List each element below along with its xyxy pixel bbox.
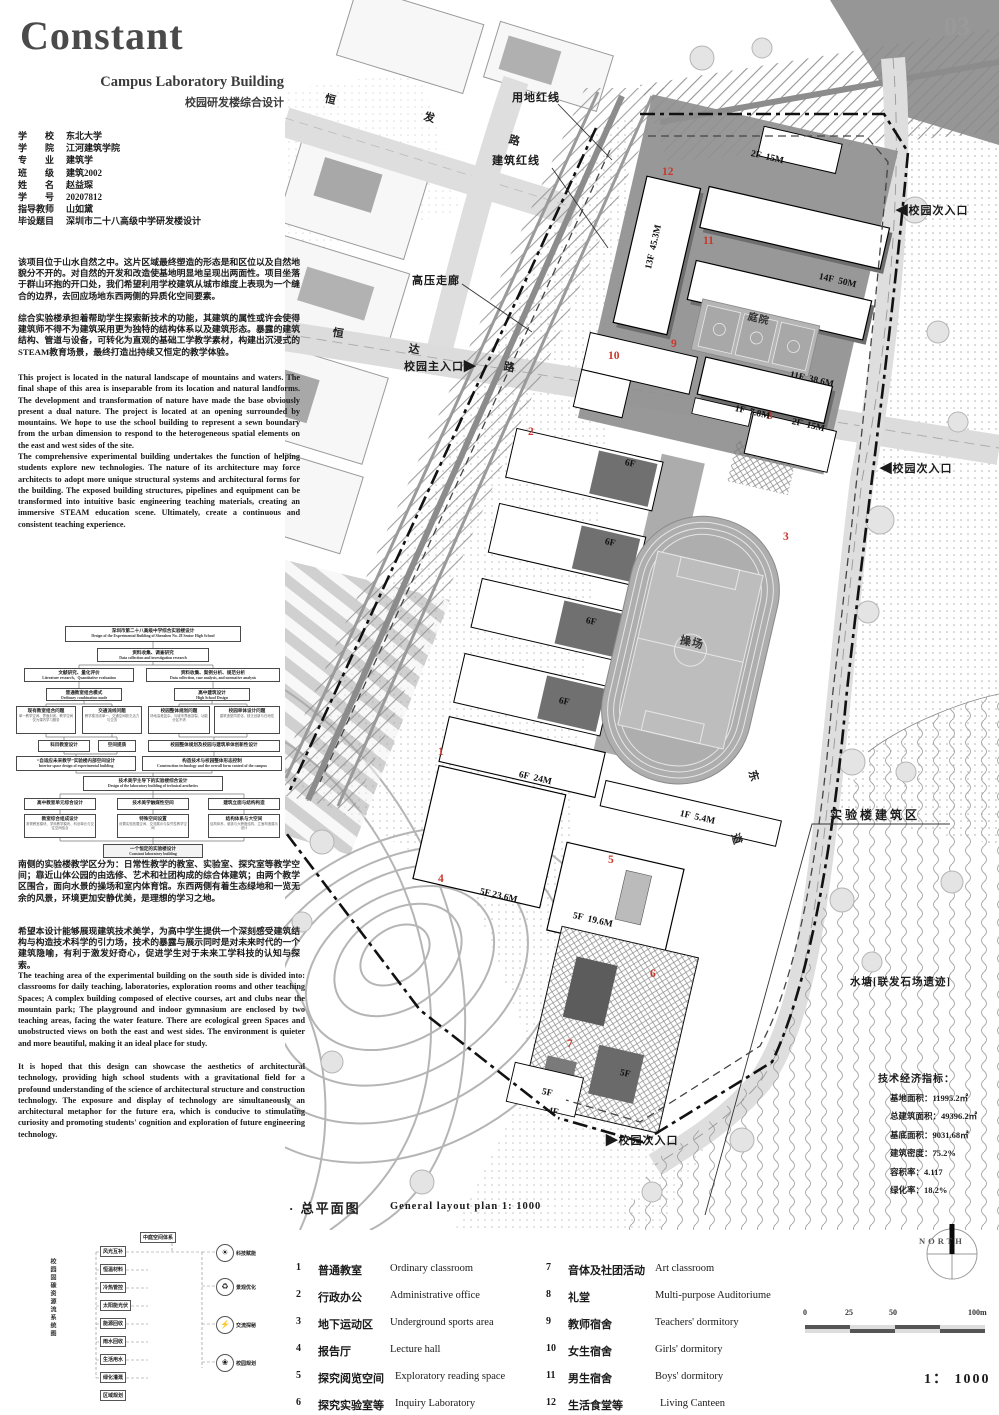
flower-icon: ❀ [216, 1354, 234, 1372]
main-entrance-label: 校园主入口▶ [404, 358, 477, 374]
info-row: 姓 名赵益琛 [18, 179, 288, 191]
section-title-zh: · 总平面图 [289, 1198, 361, 1217]
drawing-scale: 1： 1000 [924, 1368, 991, 1388]
floor-label: 6F [558, 696, 571, 708]
system-circle-label: 景观优化 [236, 1284, 256, 1291]
legend-en: Girls' dormitory [655, 1344, 723, 1355]
campus-resource-system-diagram: 校园固碳资源流系统图 中庭空间体系 风光互补 恒温材料 冷热管控 太阳能光伏 能… [52, 1228, 292, 1406]
system-node: 中庭空间体系 [140, 1232, 176, 1243]
lab-zone-label: 实验楼建筑区 [830, 806, 920, 823]
arrow-left-icon: ◀ [880, 460, 893, 476]
system-node: 冷热管控 [100, 1282, 126, 1293]
indicator-row: 建筑密度：75.2% [890, 1147, 998, 1159]
building-redline-label: 建筑红线 [492, 152, 540, 168]
legend-zh: 生活食堂等 [568, 1397, 623, 1413]
legend-item: 7音体及社团活动 [546, 1262, 645, 1278]
design-flowchart: 深圳市第二十八高级中学综合实验楼设计Design of the Experime… [16, 626, 290, 856]
legend-zh: 报告厅 [318, 1343, 351, 1359]
scale-tick: 25 [845, 1308, 853, 1317]
pond-label: 水塘[联发石场遗迹] [850, 974, 951, 989]
legend-item: 9教师宿舍 [546, 1316, 612, 1332]
legend-en: Teachers' dormitory [655, 1317, 739, 1328]
legend-en: Administrative office [390, 1290, 480, 1301]
legend-item: 12生活食堂等 [546, 1397, 623, 1413]
flowchart-box: 高中建筑设计High School Design [174, 688, 250, 701]
flowchart-box: 教室综合组成设计常规教室模块、学科教学模块、科创单元与交往空间结合 [24, 814, 96, 838]
intro-paragraph-en-2: The comprehensive experimental building … [18, 451, 300, 530]
legend-item: 11男生宿舍 [546, 1370, 612, 1386]
legend-item: 2行政办公 [296, 1289, 362, 1305]
sub-entrance-mid-label: ◀校园次入口 [880, 460, 953, 476]
indicator-row: 绿化率：18.2% [890, 1184, 998, 1196]
legend-en: Living Canteen [660, 1398, 725, 1409]
info-row: 班 级建筑2002 [18, 167, 288, 179]
scale-tick: 100m [968, 1308, 987, 1317]
legend-num: 2 [296, 1289, 318, 1305]
floor-label: 6F [585, 616, 598, 628]
sub-entrance-text: 校园次入口 [909, 205, 969, 217]
legend-en: Boys' dormitory [655, 1371, 723, 1382]
flowchart-box: 空间提质 [98, 740, 136, 752]
arrow-left-icon: ◀ [896, 202, 909, 218]
info-value: 深圳市二十八高级中学研发楼设计 [66, 215, 201, 227]
legend-item: 10女生宿舍 [546, 1343, 612, 1359]
plan-marker-11: 11 [703, 235, 714, 247]
project-info-table: 学 校东北大学 学 院江河建筑学院 专 业建筑学 班 级建筑2002 姓 名赵益… [18, 130, 288, 228]
info-label: 专 业 [18, 154, 66, 166]
flowchart-box: 交通流线问题教学楼流线单一、交通空间缺乏活力与交流 [82, 706, 142, 734]
energy-icon: ⚡ [216, 1316, 234, 1334]
legend-num: 11 [546, 1370, 568, 1386]
legend-en: Multi-purpose Auditoriume [655, 1290, 771, 1301]
flowchart-box: 结构体系与大空间结构体系、悬挑与大跨度结构、立面构造展示设计 [208, 814, 280, 838]
flowchart-box: 现有教室组合问题单一教学空间、界面封闭、教学空间仅为课内学习服务 [16, 706, 76, 734]
legend-num: 9 [546, 1316, 568, 1332]
sub-entrance-text: 校园次入口 [893, 463, 953, 475]
legend-num: 10 [546, 1343, 568, 1359]
legend-en: Exploratory reading space [395, 1371, 505, 1382]
south-paragraph-zh-1: 南侧的实验楼教学区分为：日常性教学的教室、实验室、探究室等教学空间；靠近山体公园… [18, 859, 300, 904]
main-entrance-text: 校园主入口 [404, 361, 464, 373]
legend-zh: 教师宿舍 [568, 1316, 612, 1332]
info-value: 建筑2002 [66, 167, 102, 179]
legend-en: Lecture hall [390, 1344, 440, 1355]
intro-paragraph-zh-2: 综合实验楼承担着帮助学生探索新技术的功能，其建筑的属性或许会使得建筑师不得不为建… [18, 313, 300, 358]
flowchart-box: 校园单体设计问题建筑造型同质化、缺乏创新与在地性 [214, 706, 280, 734]
plan-marker-9: 9 [671, 338, 677, 350]
south-paragraph-en-2: It is hoped that this design can showcas… [18, 1061, 305, 1140]
flowchart-box: 一个恒定的实验楼设计Constant laboratory building [103, 844, 203, 858]
sub-entrance-bottom-label: ▶校园次入口 [606, 1132, 679, 1148]
floor-label: 5F [619, 1068, 632, 1080]
flowchart-box: 普通教室组合模式Ordinary combination mode [46, 688, 122, 701]
legend-item: 6探究实验室等 [296, 1397, 384, 1413]
legend-zh: 女生宿舍 [568, 1343, 612, 1359]
system-node: 太阳能光伏 [100, 1300, 131, 1311]
indicator-row: 基地面积：11995.2㎡ [890, 1092, 998, 1104]
info-label: 毕设题目 [18, 215, 66, 227]
flowchart-box: 资料收集、案例分析、规范分析Data collection, case anal… [146, 668, 280, 682]
scale-tick: 0 [803, 1308, 807, 1317]
flowchart-box: 科目教室设计 [38, 740, 90, 752]
legend-zh: 探究实验室等 [318, 1397, 384, 1413]
legend-en: Inquiry Laboratory [395, 1398, 475, 1409]
legend-item: 3地下运动区 [296, 1316, 373, 1332]
flowchart-box: 深圳市第二十八高级中学综合实验楼设计Design of the Experime… [65, 626, 241, 642]
system-node: 雨水回收 [100, 1336, 126, 1347]
floor-label: 6F [604, 537, 617, 549]
legend-zh: 普通教室 [318, 1262, 362, 1278]
floor-label: 5F [541, 1087, 554, 1099]
legend-num: 8 [546, 1289, 568, 1305]
info-value: 建筑学 [66, 154, 93, 166]
flowchart-box: “自适应未来教学”实验楼内部空间设计Interior space design … [16, 756, 136, 771]
indicator-row: 总建筑面积：49396.2㎡ [890, 1110, 998, 1122]
info-label: 指导教师 [18, 203, 66, 215]
flowchart-box: 高中教室单元综合设计 [24, 798, 96, 810]
arrow-right-icon: ▶ [606, 1132, 619, 1148]
flowchart-box: 特殊空间设置设置实验拓展空间、交流展示与探究性教学空间 [117, 814, 189, 838]
info-label: 班 级 [18, 167, 66, 179]
legend-item: 4报告厅 [296, 1343, 351, 1359]
legend-num: 4 [296, 1343, 318, 1359]
intro-paragraph-zh-1: 该项目位于山水自然之中。这片区域最终塑造的形态是和区位以及自然地貌分不开的。对自… [18, 257, 300, 302]
legend-zh: 男生宿舍 [568, 1370, 612, 1386]
legend-zh: 礼堂 [568, 1289, 590, 1305]
flowchart-box: 校园整体规划及校园与建筑单体创新性设计 [148, 740, 280, 752]
recycle-icon: ♻ [216, 1278, 234, 1296]
floor-label: 6F [624, 458, 637, 470]
page-number: 03 [944, 12, 970, 42]
system-node: 区域规划 [100, 1390, 126, 1401]
presentation-board: 用地红线 建筑红线 高压走廊 实验楼建筑区 水塘[联发石场遗迹] 操场 庭院 校… [0, 0, 999, 1415]
floor-label: 4F [547, 1106, 560, 1118]
site-redline-label: 用地红线 [512, 89, 560, 105]
legend-en: Underground sports area [390, 1317, 494, 1328]
legend-num: 7 [546, 1262, 568, 1278]
system-circle-label: 科技赋能 [236, 1250, 256, 1257]
legend-item: 5探究阅览空间 [296, 1370, 384, 1386]
plan-marker-7: 7 [567, 1038, 573, 1050]
info-label: 学 院 [18, 142, 66, 154]
info-label: 学 号 [18, 191, 66, 203]
sub-entrance-top-label: ◀校园次入口 [896, 202, 969, 218]
subtitle-en: Campus Laboratory Building [0, 74, 284, 91]
info-row: 学 号20207812 [18, 191, 288, 203]
south-paragraph-en-1: The teaching area of the experimental bu… [18, 970, 305, 1049]
plan-marker-6: 6 [650, 968, 656, 980]
legend-num: 1 [296, 1262, 318, 1278]
system-node: 能源回收 [100, 1318, 126, 1329]
system-node: 风光互补 [100, 1246, 126, 1257]
system-circle-label: 交流探秘 [236, 1322, 256, 1329]
system-circle-label: 校园规划 [236, 1360, 256, 1367]
arrow-right-icon: ▶ [464, 358, 477, 374]
legend-num: 6 [296, 1397, 318, 1413]
plan-marker-5: 5 [608, 854, 614, 866]
hv-corridor-label: 高压走廊 [412, 272, 460, 288]
info-row: 毕设题目深圳市二十八高级中学研发楼设计 [18, 215, 288, 227]
system-node: 绿化灌溉 [100, 1372, 126, 1383]
flowchart-box: 构造技术与校园整体形态控制Construction technology and… [142, 756, 282, 771]
info-row: 指导教师山如黛 [18, 203, 288, 215]
system-node: 恒温材料 [100, 1264, 126, 1275]
technical-indicators: 技术经济指标： 基地面积：11995.2㎡ 总建筑面积：49396.2㎡ 基底面… [878, 1070, 998, 1196]
legend-item: 8礼堂 [546, 1289, 590, 1305]
subtitle-zh: 校园研发楼综合设计 [0, 94, 284, 110]
board-title: Constant [20, 12, 184, 59]
sun-icon: ☀ [216, 1244, 234, 1262]
info-value: 江河建筑学院 [66, 142, 120, 154]
intro-paragraph-en-1: This project is located in the natural l… [18, 372, 300, 451]
indicators-title: 技术经济指标： [878, 1070, 998, 1085]
plan-marker-1: 1 [438, 746, 444, 758]
plan-marker-12: 12 [662, 166, 674, 178]
flowchart-box: 技术美学主导下的实验楼综合设计Design of the laboratory … [83, 776, 223, 791]
south-paragraph-zh-2: 希望本设计能够展现建筑技术美学，为高中学生提供一个深刻感受建筑结构与构造技术科学… [18, 926, 300, 971]
info-row: 学 校东北大学 [18, 130, 288, 142]
flowchart-box: 文献研究、量化评价Literature research、Quantitativ… [24, 668, 134, 682]
info-value: 赵益琛 [66, 179, 93, 191]
legend-en: Art classroom [655, 1263, 714, 1274]
scale-tick: 50 [889, 1308, 897, 1317]
sub-entrance-text: 校园次入口 [619, 1135, 679, 1147]
info-value: 东北大学 [66, 130, 102, 142]
flowchart-box: 技术美学触媒性空间 [117, 798, 189, 810]
site-plan [285, 0, 999, 1230]
legend-item: 1普通教室 [296, 1262, 362, 1278]
legend-num: 3 [296, 1316, 318, 1332]
plan-marker-4: 4 [438, 873, 444, 885]
plan-marker-3: 3 [783, 531, 789, 543]
info-row: 专 业建筑学 [18, 154, 288, 166]
system-node: 生活用水 [100, 1354, 126, 1365]
flowchart-box: 资料收集、调查研究Data collection and investigati… [97, 648, 209, 662]
legend-zh: 探究阅览空间 [318, 1370, 384, 1386]
plan-marker-2: 2 [528, 426, 534, 438]
section-title-en: General layout plan 1: 1000 [390, 1201, 541, 1212]
plan-marker-10: 10 [608, 350, 620, 362]
info-label: 姓 名 [18, 179, 66, 191]
info-label: 学 校 [18, 130, 66, 142]
indicator-row: 基底面积：9031.68㎡ [890, 1129, 998, 1141]
legend-en: Ordinary classroom [390, 1263, 473, 1274]
north-label: NORTH [919, 1236, 965, 1246]
legend-num: 12 [546, 1397, 568, 1413]
legend-num: 5 [296, 1370, 318, 1386]
flowchart-box: 建筑立面与结构构造 [208, 798, 280, 810]
info-row: 学 院江河建筑学院 [18, 142, 288, 154]
indicator-row: 容积率：4.117 [890, 1166, 998, 1178]
legend-zh: 行政办公 [318, 1289, 362, 1305]
legend-zh: 音体及社团活动 [568, 1262, 645, 1278]
flowchart-box: 校园整体规划问题场地高差复杂、与城市界面割裂、功能分区不清 [148, 706, 210, 734]
legend-zh: 地下运动区 [318, 1316, 373, 1332]
info-value: 山如黛 [66, 203, 93, 215]
info-value: 20207812 [66, 191, 102, 203]
